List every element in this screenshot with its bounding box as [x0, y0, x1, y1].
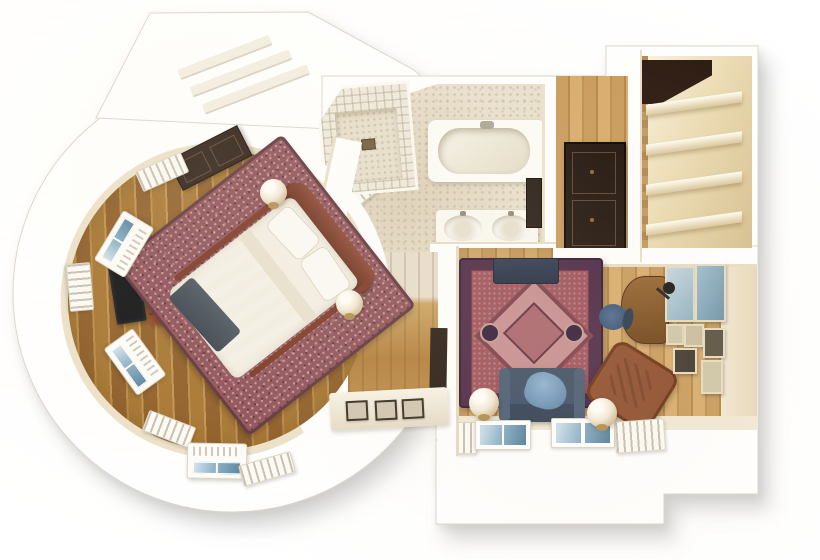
sofa [499, 368, 585, 422]
closet-shelf [646, 171, 742, 195]
globe-lamp [587, 398, 617, 428]
living-window [475, 420, 531, 450]
gallery-frame [673, 348, 697, 374]
globe-lamp [336, 290, 363, 317]
sink-faucet [508, 211, 514, 216]
sink-faucet [460, 211, 466, 216]
tv-panel-door [429, 328, 447, 388]
closet-shelf [646, 131, 742, 155]
wall-mirror [526, 178, 542, 228]
wardrobe-handle [590, 170, 594, 174]
gallery-frame [665, 266, 695, 322]
ledge-frame [402, 398, 425, 419]
radiator-cover [66, 262, 94, 312]
rug-diamond-inner [503, 302, 565, 364]
gallery-frame [701, 360, 723, 394]
picture-ledge [329, 387, 449, 431]
walk-in-closet [640, 56, 752, 248]
living-room [455, 248, 757, 456]
sink-vanity [436, 210, 538, 246]
bedroom-window-bay [187, 442, 248, 479]
bathtub [428, 120, 546, 182]
window-glass [480, 425, 526, 445]
rug-medallion [564, 323, 584, 343]
window-sill-vents [193, 447, 241, 457]
gallery-frame [684, 324, 704, 347]
ledge-frame [375, 400, 398, 421]
bathtub-faucet [480, 121, 494, 129]
wardrobe [564, 142, 626, 256]
rug-medallion [480, 323, 500, 343]
hall-closet-wall [628, 50, 642, 262]
closet-shelf [646, 211, 742, 235]
globe-lamp [469, 388, 499, 418]
living-right-wall-face [721, 258, 757, 440]
sofa-arm [499, 368, 510, 422]
gallery-frame [695, 264, 726, 322]
floor-plan-illustration [0, 0, 820, 560]
entry-hall [556, 76, 630, 262]
globe-lamp [260, 179, 287, 206]
radiator-cover [614, 418, 666, 453]
ledge-frame [346, 400, 369, 421]
media-console [493, 258, 559, 284]
sink-basin [444, 215, 482, 241]
office-chair [595, 302, 633, 336]
gallery-frame [703, 328, 725, 358]
wardrobe-handle [590, 218, 594, 222]
bathtub-basin [438, 128, 530, 174]
sofa-arm [574, 368, 585, 422]
gallery-frame [666, 324, 684, 345]
wardrobe-panel [572, 152, 616, 194]
wardrobe-panel [572, 200, 616, 246]
sink-basin [492, 215, 530, 241]
window-glass [193, 462, 241, 475]
